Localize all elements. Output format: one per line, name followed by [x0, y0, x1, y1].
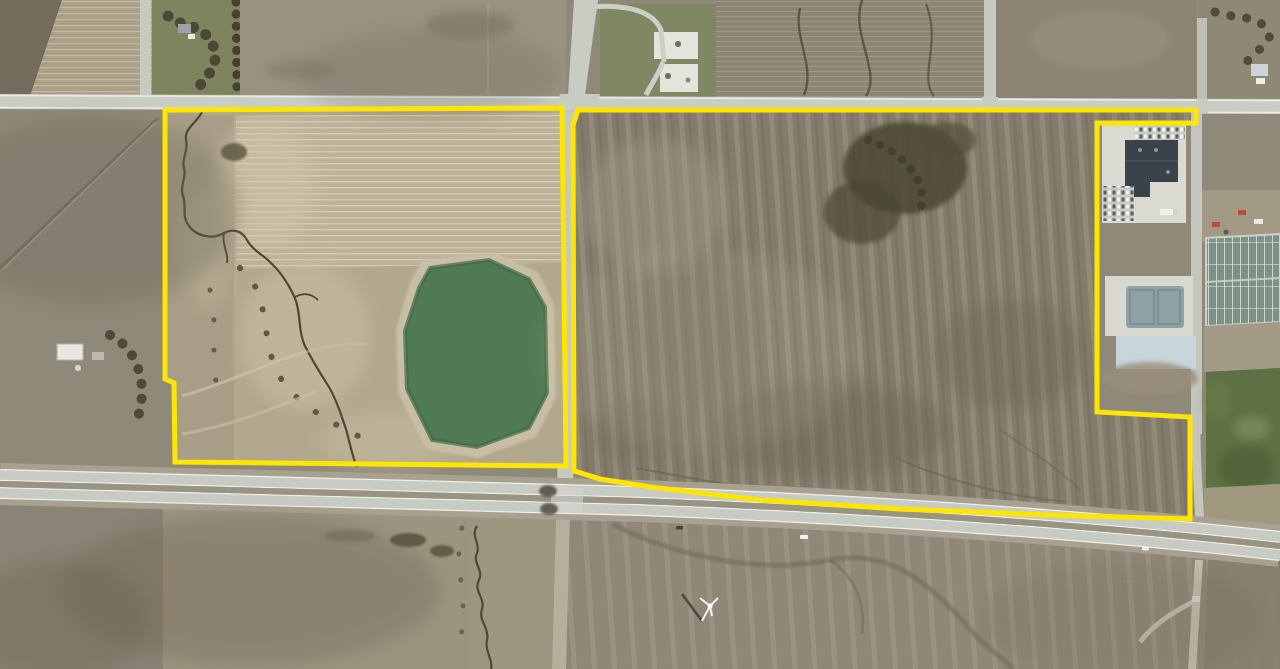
woods-blotch-2 [824, 180, 900, 244]
road-north-south-left [140, 0, 151, 97]
vehicle-white-1 [800, 535, 808, 539]
bridge-shadow-south [540, 503, 558, 515]
feature-layer [0, 0, 1280, 669]
rooftop-unit-1 [1138, 148, 1142, 152]
tone-cloud-5 [540, 250, 860, 450]
parking-row-west [1103, 186, 1134, 221]
road-north-south-far-right [1197, 18, 1207, 104]
grass-field-mottle-1 [1218, 446, 1274, 490]
vehicle-white-2 [1142, 547, 1149, 551]
woods-blotch-3 [920, 122, 976, 158]
road-north-south-mid-right [984, 0, 996, 100]
farmstead-west-shed [57, 344, 83, 360]
facility-north-equip-2 [665, 73, 671, 79]
access-road-east [1191, 112, 1202, 434]
semi-truck-cab [1173, 209, 1177, 215]
field-topright-striped [716, 0, 986, 98]
rooftop-unit-3 [1166, 170, 1170, 174]
creek-band-south [470, 509, 556, 669]
creek-dark-pool [221, 143, 247, 161]
yard-truck-red-1 [1212, 222, 1220, 227]
scrub-building-roof [1251, 64, 1268, 76]
floodplain-pale-2 [240, 260, 370, 410]
pond [405, 260, 547, 447]
dirt-strip-east [1204, 322, 1280, 372]
facility-north-pad-2 [660, 64, 698, 92]
vehicle-dark [676, 526, 683, 530]
embankment-blob-2 [430, 545, 454, 557]
farmstead-north-shed [188, 34, 195, 39]
rooftop-unit-2 [1154, 148, 1158, 152]
facility-north-equip-1 [675, 41, 681, 47]
aerial-map [0, 0, 1280, 669]
parcel-right-smudge-2 [935, 300, 1085, 410]
yard-truck-red-2 [1238, 210, 1246, 215]
semi-truck [1160, 209, 1175, 215]
wind-turbine-hub [708, 604, 713, 609]
field-topright-2-pale [1030, 10, 1170, 70]
yard-truck-white [1254, 219, 1263, 224]
yard-equip-dot [1224, 230, 1229, 235]
bridge-shadow-north [539, 485, 557, 497]
grass-field-mottle-3 [1204, 380, 1232, 420]
treeline-north [236, 2, 237, 92]
parking-row-north [1135, 125, 1185, 140]
lagoon-dirt-edge [1102, 362, 1198, 394]
farmstead-west-outbuilding [92, 352, 104, 360]
farmstead-west-silo [75, 365, 81, 371]
scrub-building-pad [1256, 78, 1265, 84]
scrub-topright [1196, 0, 1280, 100]
grass-field-mottle-2 [1234, 416, 1270, 440]
facility-north-equip-3 [686, 78, 691, 83]
farmstead-north-house [178, 24, 191, 33]
map-viewport[interactable] [0, 0, 1280, 669]
